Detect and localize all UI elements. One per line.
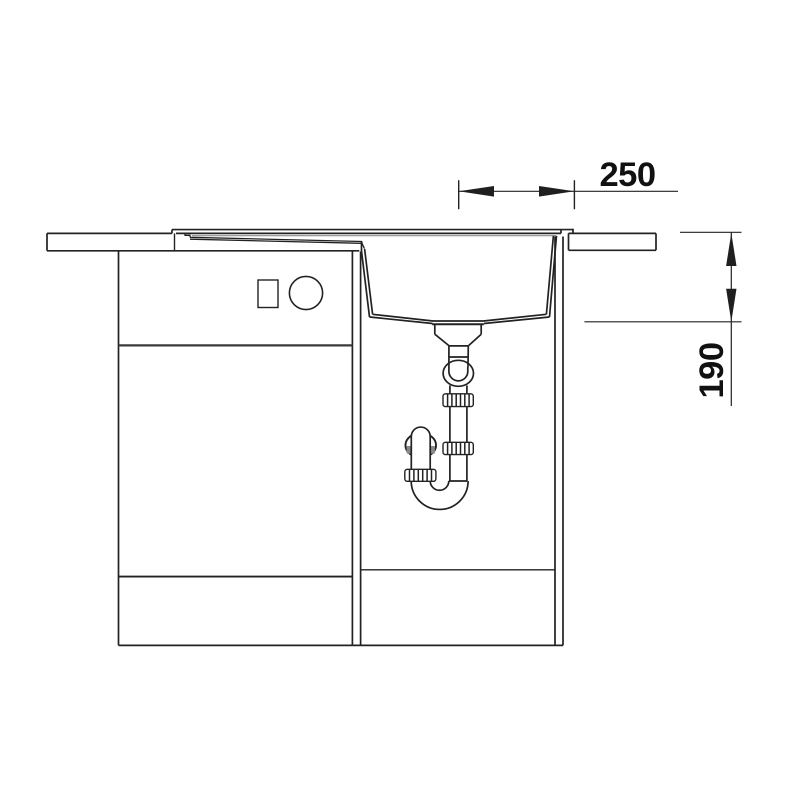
svg-text:250: 250 [600, 156, 656, 194]
svg-text:190: 190 [693, 342, 731, 398]
